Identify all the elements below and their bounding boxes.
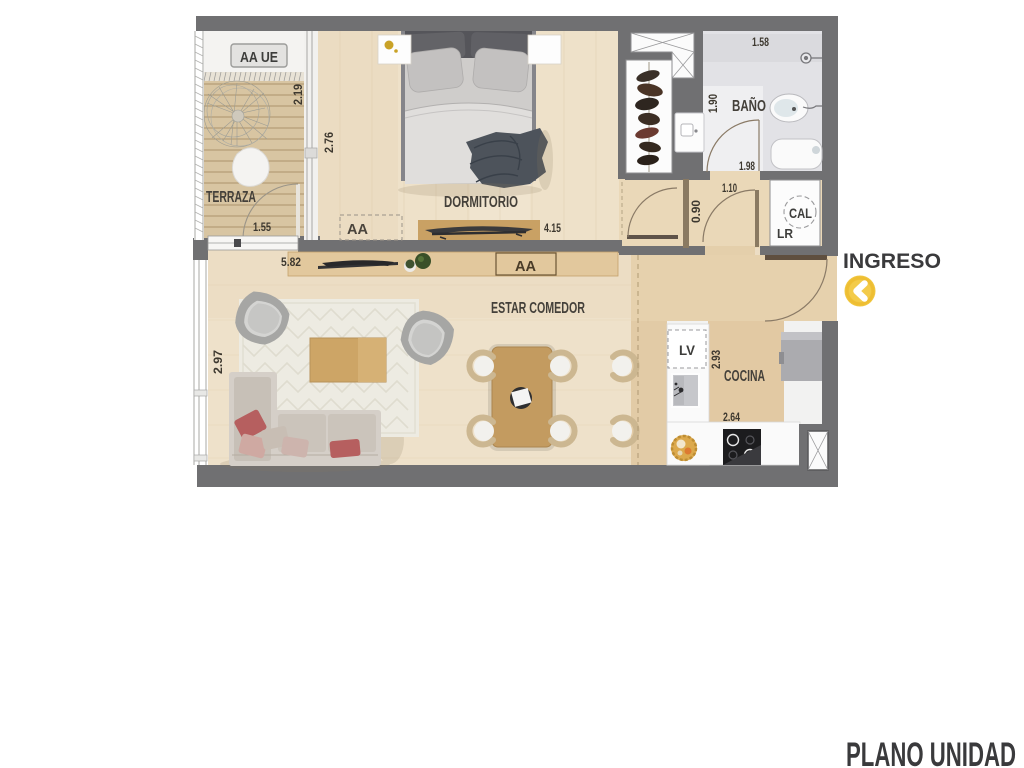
- svg-text:BAÑO: BAÑO: [732, 95, 766, 115]
- svg-text:4.15: 4.15: [544, 221, 561, 235]
- svg-text:LV: LV: [679, 342, 696, 358]
- svg-text:2.19: 2.19: [291, 84, 305, 105]
- svg-text:1.55: 1.55: [253, 220, 271, 234]
- svg-text:COCINA: COCINA: [724, 368, 765, 385]
- svg-text:1.90: 1.90: [706, 94, 720, 113]
- svg-text:2.76: 2.76: [322, 132, 336, 153]
- svg-text:2.97: 2.97: [211, 350, 225, 374]
- svg-text:0.90: 0.90: [689, 200, 703, 223]
- svg-text:AA: AA: [347, 221, 368, 238]
- svg-text:CAL: CAL: [789, 205, 812, 221]
- svg-text:TERRAZA: TERRAZA: [206, 189, 256, 206]
- svg-text:LR: LR: [777, 226, 794, 241]
- svg-text:AA UE: AA UE: [240, 49, 278, 66]
- svg-text:1.10: 1.10: [722, 181, 737, 195]
- svg-text:2.93: 2.93: [709, 350, 723, 369]
- svg-text:5.82: 5.82: [281, 255, 301, 269]
- svg-text:DORMITORIO: DORMITORIO: [444, 194, 518, 211]
- svg-text:INGRESO: INGRESO: [843, 250, 941, 273]
- svg-text:AA: AA: [515, 258, 536, 275]
- svg-text:1.58: 1.58: [752, 35, 769, 49]
- svg-text:PLANO UNIDAD: PLANO UNIDAD: [846, 736, 1016, 768]
- svg-text:1.98: 1.98: [739, 159, 755, 173]
- svg-text:2.64: 2.64: [723, 410, 740, 424]
- svg-text:ESTAR COMEDOR: ESTAR COMEDOR: [491, 300, 585, 317]
